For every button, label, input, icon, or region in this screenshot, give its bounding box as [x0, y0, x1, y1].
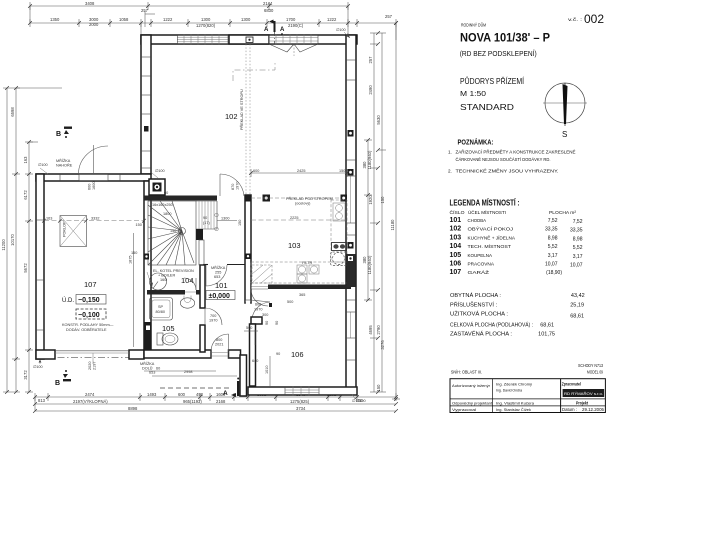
svg-text:150: 150	[238, 220, 242, 226]
svg-text:163: 163	[46, 217, 52, 221]
svg-text:S: S	[562, 130, 567, 139]
svg-text:3332: 3332	[91, 217, 99, 221]
svg-text:106: 106	[291, 350, 304, 359]
svg-text:Ing. Vlastimil Kučera: Ing. Vlastimil Kučera	[496, 400, 535, 405]
svg-text:PLOCHA m²: PLOCHA m²	[549, 210, 576, 215]
svg-text:Ing. Zdeněk Chromý: Ing. Zdeněk Chromý	[496, 382, 532, 387]
svg-text:8898: 8898	[128, 406, 138, 411]
svg-text:M 1:50: M 1:50	[460, 89, 486, 98]
svg-text:500: 500	[287, 300, 293, 304]
svg-text:6172: 6172	[23, 190, 28, 200]
svg-text:105: 105	[450, 252, 462, 259]
svg-text:2000: 2000	[89, 22, 99, 27]
svg-text:B: B	[55, 380, 60, 387]
svg-text:150: 150	[339, 169, 345, 173]
svg-text:107: 107	[84, 280, 97, 289]
svg-text:POKLOP: POKLOP	[63, 221, 67, 237]
svg-text:43,42: 43,42	[571, 293, 585, 299]
svg-text:TECH. MÍSTNOST: TECH. MÍSTNOST	[468, 243, 512, 249]
svg-text:3,17: 3,17	[573, 254, 583, 260]
svg-text:±0,000: ±0,000	[209, 293, 230, 300]
svg-text:1970: 1970	[209, 319, 217, 323]
svg-text:SCHODY N713: SCHODY N713	[578, 363, 603, 368]
svg-text:∅100: ∅100	[38, 163, 48, 167]
svg-text:25,19: 25,19	[570, 303, 584, 309]
svg-text:2197: 2197	[93, 362, 97, 370]
svg-text:6830: 6830	[264, 8, 274, 13]
svg-text:2490: 2490	[368, 85, 373, 95]
svg-text:OBÝVACÍ POKOJ: OBÝVACÍ POKOJ	[468, 226, 514, 232]
svg-text:7,52: 7,52	[548, 218, 558, 224]
svg-text:2144: 2144	[263, 1, 273, 6]
svg-text:A: A	[280, 27, 285, 33]
svg-text:90: 90	[276, 352, 280, 356]
svg-text:1222: 1222	[327, 17, 337, 22]
svg-text:1275(825): 1275(825)	[290, 399, 310, 404]
svg-text:−0,100: −0,100	[78, 312, 100, 319]
svg-text:KOUPELNA: KOUPELNA	[468, 253, 493, 258]
svg-text:2021: 2021	[215, 343, 223, 347]
svg-text:+ BOILER: + BOILER	[158, 274, 175, 278]
svg-text:150: 150	[380, 196, 385, 204]
svg-text:1350: 1350	[50, 17, 60, 22]
svg-text:Datum :: Datum :	[562, 407, 577, 412]
svg-text:PŘEKLAD POD STROPEM: PŘEKLAD POD STROPEM	[286, 196, 333, 201]
svg-text:150: 150	[136, 223, 142, 227]
svg-text:2474: 2474	[85, 392, 95, 397]
svg-text:10,07: 10,07	[570, 263, 583, 269]
svg-text:KUCHYNĚ + JÍDELNA: KUCHYNĚ + JÍDELNA	[468, 233, 516, 240]
svg-text:1180(940): 1180(940)	[367, 150, 372, 169]
svg-text:RD RÝMAŘOV s.r.o.: RD RÝMAŘOV s.r.o.	[564, 391, 603, 396]
svg-text:90: 90	[265, 321, 269, 325]
svg-text:10170: 10170	[10, 234, 15, 246]
svg-text:68,61: 68,61	[540, 323, 554, 329]
svg-text:∅100: ∅100	[336, 28, 346, 32]
svg-text:813: 813	[38, 398, 46, 403]
svg-text:STANDARD: STANDARD	[460, 102, 514, 112]
svg-text:8,98: 8,98	[548, 235, 558, 241]
svg-text:11200: 11200	[1, 239, 6, 251]
svg-text:653: 653	[214, 275, 220, 279]
svg-text:2020: 2020	[88, 362, 92, 370]
svg-text:3276: 3276	[380, 340, 385, 350]
svg-text:3734: 3734	[296, 406, 306, 411]
svg-text:1300: 1300	[241, 17, 251, 22]
svg-text:(ocelový): (ocelový)	[295, 202, 311, 206]
svg-text:Ú.D.: Ú.D.	[62, 297, 74, 304]
svg-text:2190(C): 2190(C)	[288, 23, 304, 28]
svg-text:MŘÍŽKA: MŘÍŽKA	[56, 158, 71, 163]
svg-text:103: 103	[450, 234, 462, 241]
svg-text:B: B	[56, 131, 61, 138]
svg-text:1222: 1222	[163, 17, 173, 22]
svg-text:106: 106	[450, 261, 462, 268]
svg-text:MŘÍŽKA: MŘÍŽKA	[211, 265, 226, 270]
svg-text:∅100: ∅100	[356, 399, 366, 403]
svg-text:101: 101	[215, 281, 228, 290]
svg-text:11180: 11180	[390, 219, 395, 231]
svg-text:1875: 1875	[129, 256, 133, 264]
svg-text:2425: 2425	[297, 169, 305, 173]
svg-text:MŘÍŽKA: MŘÍŽKA	[140, 361, 155, 366]
svg-text:33,35: 33,35	[545, 227, 558, 233]
svg-text:80/80: 80/80	[156, 310, 166, 314]
svg-text:1800: 1800	[163, 212, 171, 216]
svg-text:1920: 1920	[368, 195, 373, 205]
svg-text:7,52: 7,52	[573, 219, 583, 225]
svg-text:Vypracoval: Vypracoval	[452, 407, 476, 412]
svg-text:v.č. :: v.č. :	[568, 17, 582, 22]
svg-text:SNÍH: OBLAST III.: SNÍH: OBLAST III.	[451, 370, 482, 375]
svg-text:PŘEKLAD VE STROPU: PŘEKLAD VE STROPU	[239, 89, 244, 130]
svg-text:6598: 6598	[10, 107, 15, 117]
svg-text:90: 90	[275, 321, 279, 325]
svg-text:Ing. David Ondra: Ing. David Ondra	[496, 388, 523, 393]
svg-text:965(1193): 965(1193)	[183, 399, 202, 404]
svg-text:1300: 1300	[221, 217, 229, 221]
svg-text:∅100: ∅100	[33, 365, 43, 369]
svg-text:5,52: 5,52	[573, 245, 583, 251]
svg-text:1270(820): 1270(820)	[196, 23, 216, 28]
svg-text:3172: 3172	[23, 370, 28, 380]
svg-text:16x162x250: 16x162x250	[152, 203, 173, 207]
svg-text:1970: 1970	[254, 308, 262, 312]
svg-text:2197(VÝKLOPNÁ): 2197(VÝKLOPNÁ)	[73, 399, 108, 404]
svg-text:1300: 1300	[201, 17, 211, 22]
svg-text:800: 800	[216, 338, 222, 342]
svg-text:4695: 4695	[368, 325, 373, 335]
svg-text:150: 150	[131, 251, 137, 255]
svg-text:1970: 1970	[236, 182, 240, 190]
svg-text:10,07: 10,07	[545, 262, 558, 268]
svg-text:150: 150	[376, 384, 381, 392]
svg-text:1180(940): 1180(940)	[367, 255, 372, 274]
svg-text:1493: 1493	[147, 392, 157, 397]
svg-text:LEGENDA MÍSTNOSTÍ :: LEGENDA MÍSTNOSTÍ :	[450, 199, 520, 208]
svg-text:60: 60	[156, 367, 160, 371]
svg-text:5672: 5672	[23, 263, 28, 273]
svg-text:3,17: 3,17	[548, 253, 558, 259]
svg-text:NAHOŘE: NAHOŘE	[56, 163, 73, 168]
svg-text:TECHNICKÉ ZMĚNY JSOU VYHRAZENY: TECHNICKÉ ZMĚNY JSOU VYHRAZENY.	[456, 167, 559, 174]
svg-text:ÚČEL MÍSTNOSTI: ÚČEL MÍSTNOSTI	[468, 209, 506, 215]
svg-text:600: 600	[178, 392, 186, 397]
svg-text:68,61: 68,61	[570, 314, 584, 320]
svg-text:∅100: ∅100	[155, 169, 165, 173]
svg-text:2225: 2225	[290, 216, 298, 220]
svg-text:103: 103	[288, 241, 301, 250]
svg-text:105: 105	[162, 324, 175, 333]
svg-text:002: 002	[584, 12, 604, 26]
svg-text:(RD BEZ PODSKLEPENÍ): (RD BEZ PODSKLEPENÍ)	[460, 49, 537, 58]
svg-text:PŮDORYS PŘÍZEMÍ: PŮDORYS PŘÍZEMÍ	[460, 77, 525, 86]
svg-text:DODÁV. ODBĚRATELE: DODÁV. ODBĚRATELE	[66, 327, 107, 332]
svg-text:101: 101	[450, 217, 462, 224]
svg-text:640: 640	[252, 359, 258, 363]
svg-text:1.: 1.	[448, 150, 452, 155]
svg-text:33,35: 33,35	[570, 228, 583, 234]
svg-text:29.12.2005: 29.12.2005	[582, 407, 605, 412]
svg-text:2998: 2998	[184, 370, 192, 374]
svg-text:(17): (17)	[203, 221, 210, 225]
svg-text:60: 60	[164, 191, 168, 195]
svg-text:Odpovědný projektant: Odpovědný projektant	[452, 400, 493, 405]
svg-text:CHODBA: CHODBA	[468, 218, 487, 223]
svg-text:498: 498	[196, 392, 204, 397]
svg-text:PRACOVNA: PRACOVNA	[468, 262, 495, 267]
svg-text:CELKOVÁ PLOCHA (PODLAHOVÁ) :: CELKOVÁ PLOCHA (PODLAHOVÁ) :	[450, 322, 533, 329]
svg-text:5,52: 5,52	[548, 244, 558, 250]
svg-text:ZASTAVĚNÁ PLOCHA :: ZASTAVĚNÁ PLOCHA :	[450, 330, 512, 338]
svg-text:257: 257	[385, 14, 393, 19]
svg-text:SP: SP	[158, 305, 164, 309]
svg-text:POZNÁMKA:: POZNÁMKA:	[458, 138, 494, 147]
svg-text:EL. KOTEL PREVISION: EL. KOTEL PREVISION	[153, 269, 194, 273]
svg-text:1600: 1600	[92, 182, 96, 190]
svg-text:107: 107	[450, 269, 462, 276]
svg-text:A: A	[264, 27, 269, 33]
svg-text:102: 102	[225, 112, 238, 121]
svg-text:163: 163	[23, 156, 28, 164]
svg-text:Projekt: Projekt	[576, 400, 588, 406]
svg-text:300: 300	[262, 313, 268, 317]
svg-text:365: 365	[299, 293, 305, 297]
svg-text:PŘÍSLUŠENSTVÍ :: PŘÍSLUŠENSTVÍ :	[450, 301, 497, 309]
svg-text:A: A	[223, 390, 228, 397]
svg-text:700: 700	[210, 314, 216, 318]
svg-text:MODEL 09: MODEL 09	[587, 370, 603, 375]
svg-text:600: 600	[88, 184, 92, 190]
svg-text:5630: 5630	[376, 115, 381, 125]
svg-text:102: 102	[450, 226, 462, 233]
svg-text:257: 257	[368, 56, 373, 64]
svg-text:(18,90): (18,90)	[546, 270, 562, 276]
svg-text:104: 104	[450, 243, 462, 250]
svg-text:150: 150	[170, 229, 176, 233]
svg-text:1010: 1010	[265, 366, 269, 374]
svg-text:GARÁŽ: GARÁŽ	[468, 268, 490, 275]
svg-text:Ing. Stanislav Čížek: Ing. Stanislav Čížek	[496, 407, 531, 412]
svg-text:500: 500	[246, 326, 252, 330]
svg-text:RODINNÝ DŮM: RODINNÝ DŮM	[461, 23, 486, 28]
svg-text:1058: 1058	[119, 17, 129, 22]
svg-text:600: 600	[253, 169, 259, 173]
svg-text:3408: 3408	[85, 1, 95, 6]
svg-text:NOVA 101/38' – P: NOVA 101/38' – P	[460, 31, 550, 45]
svg-text:257: 257	[141, 8, 149, 13]
svg-text:255: 255	[215, 271, 221, 275]
svg-text:−0,150: −0,150	[78, 297, 100, 304]
svg-text:1700: 1700	[286, 17, 296, 22]
svg-text:ČÍSLO: ČÍSLO	[450, 209, 465, 215]
svg-text:2790: 2790	[376, 325, 381, 335]
svg-text:90: 90	[203, 216, 207, 220]
svg-text:2168: 2168	[216, 399, 226, 404]
svg-text:Autorizovaný inženýr: Autorizovaný inženýr	[452, 383, 491, 388]
svg-text:KONSTR. PODLAHY 50mm—: KONSTR. PODLAHY 50mm—	[62, 323, 114, 327]
svg-text:OBYTNÁ PLOCHA :: OBYTNÁ PLOCHA :	[450, 292, 501, 299]
svg-text:Zpracovatel: Zpracovatel	[562, 382, 581, 388]
svg-text:UŽITKOVÁ PLOCHA :: UŽITKOVÁ PLOCHA :	[450, 310, 508, 318]
svg-text:101,75: 101,75	[538, 332, 555, 338]
svg-text:2.: 2.	[448, 169, 452, 174]
svg-text:ČÁRKOVANĚ NEJSOU SOUČÁSTÍ DODÁ: ČÁRKOVANĚ NEJSOU SOUČÁSTÍ DODÁVKY RD.	[456, 155, 551, 162]
svg-text:FILTR: FILTR	[302, 261, 313, 265]
svg-text:600: 600	[255, 303, 261, 307]
svg-text:8,98: 8,98	[573, 236, 583, 242]
svg-text:ZAŘIZOVACÍ PŘEDMĚTY A KONSTRUK: ZAŘIZOVACÍ PŘEDMĚTY A KONSTRUKCE ZAKRESL…	[456, 148, 576, 155]
svg-text:870: 870	[231, 184, 235, 190]
